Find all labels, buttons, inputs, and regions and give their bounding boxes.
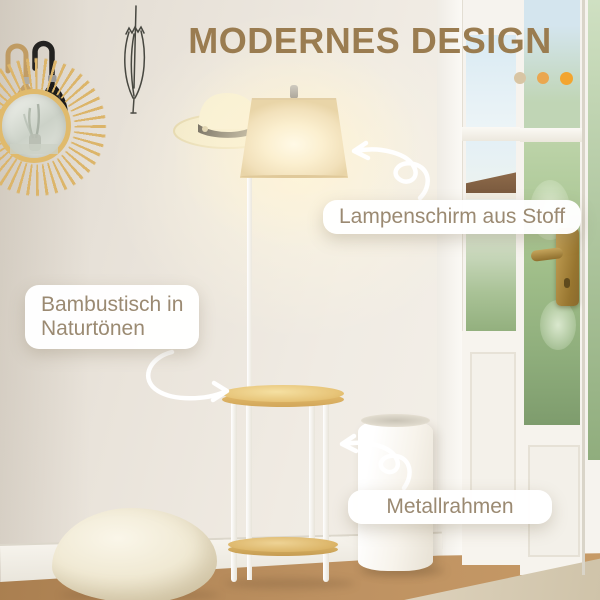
- bamboo-shelf: [228, 537, 338, 552]
- neighbor-roof-fascia: [466, 193, 516, 199]
- table-leg-front-right: [323, 400, 329, 582]
- door-handle-plate: [556, 228, 579, 306]
- door-keyhole: [564, 278, 570, 288]
- mirror-reflection: [2, 94, 66, 158]
- door-glass-sky: [466, 141, 516, 331]
- decor-dot-2: [537, 72, 549, 84]
- callout-lampshade: Lampenschirm aus Stoff: [323, 200, 581, 234]
- callout-table-line2: Naturtönen: [41, 317, 183, 341]
- decor-dot-3: [560, 72, 573, 85]
- door-rail: [462, 127, 520, 141]
- arrow-to-lampshade-icon: [338, 132, 448, 207]
- lamp-finial: [290, 85, 298, 99]
- callout-lampshade-text: Lampenschirm aus Stoff: [339, 205, 565, 228]
- sunburst-mirror: [0, 89, 71, 163]
- lamp-shade-rim-top: [252, 98, 336, 100]
- arrow-to-table-icon: [130, 348, 240, 408]
- umbrella-stand-opening: [361, 414, 430, 427]
- callout-frame: Metallrahmen: [348, 490, 552, 524]
- door-glass-edge: [588, 0, 600, 460]
- callout-table: Bambustisch in Naturtönen: [25, 285, 199, 349]
- door-frame: [437, 0, 463, 565]
- foliage-highlight: [540, 300, 576, 350]
- bamboo-tabletop: [222, 385, 344, 402]
- arrow-to-frame-icon: [330, 428, 420, 496]
- table-leg-back-right: [309, 397, 315, 547]
- lamp-shade: [240, 98, 348, 178]
- decor-dot-1: [514, 72, 526, 84]
- callout-table-line1: Bambustisch in: [41, 293, 183, 317]
- product-scene: MODERNES DESIGN: [0, 0, 600, 600]
- lamp-shade-rim-bottom: [240, 175, 348, 178]
- table-leg-front-left: [231, 400, 237, 582]
- table-shadow: [225, 578, 355, 589]
- door-panel-inset-left: [470, 352, 516, 506]
- callout-frame-text: Metallrahmen: [386, 495, 513, 518]
- door-rail-right: [520, 128, 584, 142]
- table-leg-back-left: [246, 397, 252, 547]
- door-seam: [582, 0, 585, 575]
- page-title: MODERNES DESIGN: [140, 20, 600, 62]
